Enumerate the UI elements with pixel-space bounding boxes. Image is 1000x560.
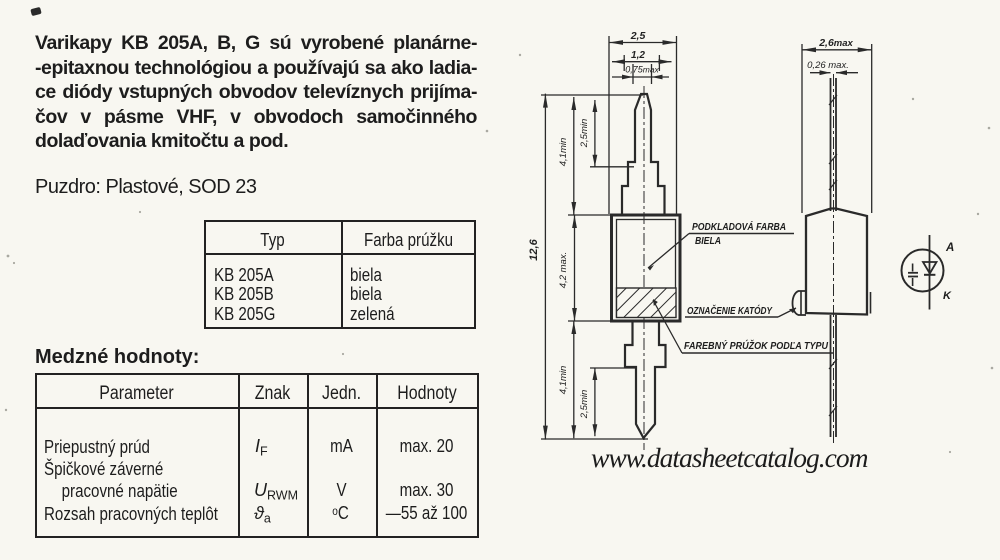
svg-text:0,26 max.: 0,26 max. bbox=[807, 60, 849, 71]
svg-text:12,6: 12,6 bbox=[528, 238, 540, 260]
svg-text:K: K bbox=[943, 290, 952, 302]
svg-text:4,1min: 4,1min bbox=[558, 366, 569, 395]
svg-text:OZNAČENIE KATÓDY: OZNAČENIE KATÓDY bbox=[687, 304, 773, 317]
svg-text:2,5min: 2,5min bbox=[579, 119, 590, 149]
svg-text:A: A bbox=[945, 242, 954, 254]
svg-text:2,6max: 2,6max bbox=[818, 37, 853, 49]
svg-text:FAREBNÝ PRÚŽOK PODĽA TYPU: FAREBNÝ PRÚŽOK PODĽA TYPU bbox=[684, 339, 829, 352]
svg-text:4,1min: 4,1min bbox=[558, 138, 569, 167]
svg-text:4,2 max.: 4,2 max. bbox=[558, 252, 569, 288]
svg-text:0,75max: 0,75max bbox=[625, 65, 659, 75]
svg-text:1,2: 1,2 bbox=[631, 50, 645, 61]
svg-text:2,5min: 2,5min bbox=[579, 390, 590, 420]
svg-text:PODKLADOVÁ FARBA: PODKLADOVÁ FARBA bbox=[692, 220, 786, 233]
svg-text:BIELA: BIELA bbox=[695, 236, 721, 247]
svg-text:2,5: 2,5 bbox=[630, 30, 646, 42]
